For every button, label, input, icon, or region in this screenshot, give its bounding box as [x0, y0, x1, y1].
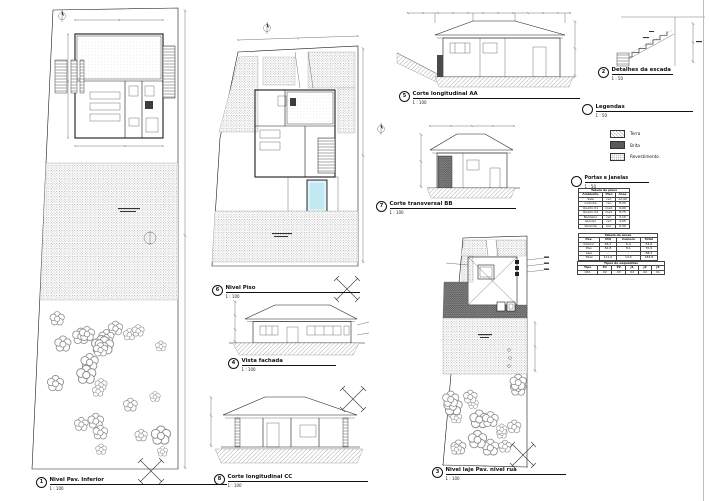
legend-item-label: Revestimento	[630, 154, 659, 159]
table-esquadrias: Tipos de esquadriasTipoP1P2J1J2J3Qtd.020…	[577, 261, 665, 275]
view-scale-text: 1 : 100	[226, 293, 360, 299]
legend-title: Legendas	[596, 104, 693, 112]
ground-hatch	[215, 449, 363, 463]
schedules-badge	[571, 176, 582, 187]
legend: Legendas 1 : 50 Terra Brita Revestimento	[582, 104, 704, 164]
legend-item-label: Brita	[630, 143, 640, 148]
swatch-brita	[610, 141, 625, 149]
view-title-text: Nivel Pav. Inferior	[50, 477, 227, 485]
stair-base-hatch	[617, 53, 629, 66]
view-scale-text: 1 : 100	[228, 482, 368, 488]
table-pisos: Tabela de pisosAmbientePisoÁreaSalacer.1…	[578, 188, 630, 229]
fixture-dark	[145, 101, 153, 109]
view-scale-text: 1 : 50	[612, 75, 673, 81]
view-2-title: 2 Detalhes da escada 1 : 50	[598, 67, 673, 81]
building-plan	[55, 19, 175, 147]
legend-badge	[582, 104, 593, 115]
view-4-title: 4 Vista fachada 1 : 100	[228, 358, 336, 372]
view-number-badge: 3	[432, 467, 443, 478]
north-arrow-icon	[374, 122, 388, 136]
legend-scale: 1 : 50	[596, 112, 693, 118]
view-number-badge: 1	[36, 477, 47, 488]
view-title-text: Nivel laje Pav. nivel rua	[446, 467, 566, 475]
view-7-section-bb	[415, 118, 530, 208]
door	[267, 423, 279, 447]
view-6-title: 6 Nivel Piso 1 : 100	[212, 285, 360, 299]
swatch-terra	[610, 130, 625, 138]
drawing-sheet: 1 Nivel Pav. Inferior 1 : 100 8 Corte lo…	[0, 0, 709, 501]
view-2-stair-detail	[615, 3, 709, 68]
tree-cluster	[47, 312, 170, 457]
view-title-text: Corte longitudinal AA	[413, 91, 580, 99]
view-5-section-aa	[395, 5, 580, 95]
view-scale-text: 1 : 100	[446, 475, 566, 481]
view-title-text: Detalhes da escada	[612, 67, 673, 75]
view-1-site-plan-lower	[30, 6, 215, 476]
door	[533, 47, 546, 77]
legend-item-label: Terra	[630, 131, 640, 136]
cut-wall-dark	[438, 156, 452, 188]
stair-steps	[625, 31, 667, 57]
ground-stipple-zone	[443, 318, 527, 374]
ground-stipple-zone	[40, 163, 178, 300]
view-8-title: 8 Corte longitudinal CC 1 : 100	[214, 474, 368, 488]
legend-item: Brita	[610, 141, 704, 149]
x-mark-icon	[340, 386, 366, 412]
building-plan	[255, 90, 335, 177]
view-number-badge: 4	[228, 358, 239, 369]
terrain-hatch	[397, 53, 443, 85]
wall-outline	[443, 38, 560, 77]
view-title-text: Corte transversal BB	[390, 201, 516, 209]
pool	[307, 180, 327, 212]
x-mark-icon	[510, 442, 536, 468]
roof	[430, 134, 513, 153]
view-scale-text: 1 : 100	[242, 366, 336, 372]
view-4-front-elevation	[225, 295, 370, 365]
view-scale-text: 1 : 100	[50, 485, 227, 491]
view-number-badge: 8	[214, 474, 225, 485]
view-number-badge: 6	[212, 285, 223, 296]
view-scale-text: 1 : 100	[413, 99, 580, 105]
swatch-revestimento	[610, 153, 625, 161]
view-title-text: Corte longitudinal CC	[228, 474, 368, 482]
view-7-title: 7 Corte transversal BB 1 : 100	[376, 201, 516, 215]
north-arrow-icon	[264, 22, 271, 34]
view-number-badge: 5	[399, 91, 410, 102]
legend-items: Terra Brita Revestimento	[610, 130, 704, 161]
dark-paving-zone	[443, 282, 527, 318]
view-1-title: 1 Nivel Pav. Inferior 1 : 100	[36, 477, 227, 491]
legend-item: Revestimento	[610, 153, 704, 161]
view-5-title: 5 Corte longitudinal AA 1 : 100	[399, 91, 580, 105]
view-3-title: 3 Nivel laje Pav. nivel rua 1 : 100	[432, 467, 566, 481]
view-number-badge: 7	[376, 201, 387, 212]
schedules-heading: Portas e Janelas 1 : 50	[571, 176, 705, 189]
legend-heading: Legendas 1 : 50	[582, 104, 704, 118]
view-scale-text: 1 : 100	[390, 209, 516, 215]
table-areas: Tabela de áreasPav.ÚtilComumTotalInferio…	[578, 233, 658, 261]
view-6-floor-plan	[210, 8, 370, 288]
view-3-roof-site-plan	[430, 232, 550, 472]
stair-hatch	[163, 46, 175, 98]
schedules-title: Portas e Janelas	[585, 176, 649, 183]
schedules-block: Portas e Janelas 1 : 50 Tabela de pisosA…	[571, 176, 705, 189]
view-title-text: Vista fachada	[242, 358, 336, 366]
roof	[223, 397, 357, 418]
view-title-text: Nivel Piso	[226, 285, 360, 293]
roof	[245, 305, 357, 322]
view-number-badge: 2	[598, 67, 609, 78]
ground-hatch	[233, 343, 359, 355]
sheet-frame-line	[703, 0, 705, 501]
stair-hatch	[318, 138, 335, 173]
north-arrow-icon	[59, 10, 66, 22]
roof-plan	[468, 257, 519, 305]
legend-item: Terra	[610, 130, 704, 138]
door	[287, 327, 298, 343]
roof	[435, 21, 565, 38]
